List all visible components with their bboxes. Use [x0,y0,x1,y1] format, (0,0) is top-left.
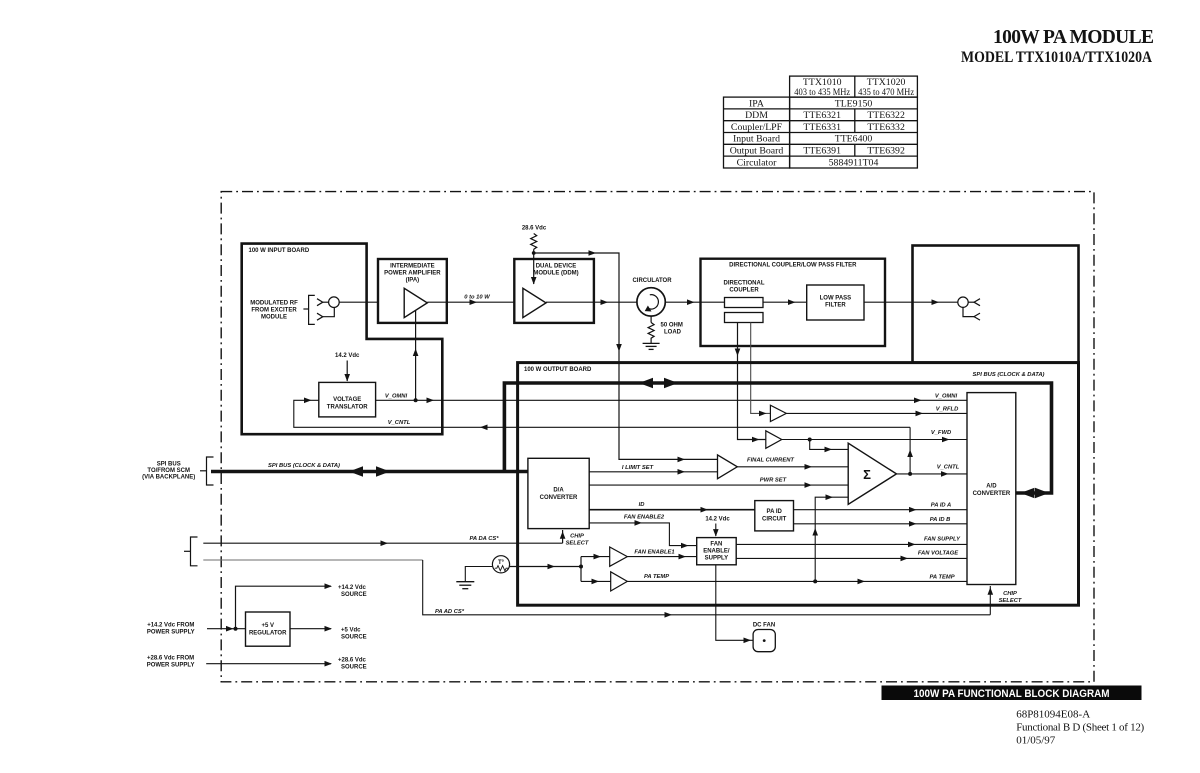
svg-text:Coupler/LPF: Coupler/LPF [731,122,783,133]
svg-text:TTE6332: TTE6332 [867,122,905,133]
svg-text:CONVERTER: CONVERTER [540,495,578,501]
svg-text:TO/FROM SCM: TO/FROM SCM [147,468,190,474]
svg-text:SOURCE: SOURCE [341,635,367,641]
svg-text:Σ: Σ [863,467,871,482]
svg-text:TTE6321: TTE6321 [803,110,841,121]
svg-text:DDM: DDM [745,110,768,121]
svg-text:FAN: FAN [710,542,722,548]
svg-text:DC FAN: DC FAN [753,623,775,629]
svg-text:CHIP: CHIP [1003,591,1017,597]
svg-text:100W PA MODULE: 100W PA MODULE [993,27,1154,48]
svg-text:100W PA FUNCTIONAL BLOCK DIAGR: 100W PA FUNCTIONAL BLOCK DIAGRAM [914,688,1110,700]
svg-text:+28.6 Vdc: +28.6 Vdc [338,658,367,664]
svg-text:V_RFLD: V_RFLD [936,406,959,412]
svg-text:+14.2 Vdc: +14.2 Vdc [338,585,367,591]
svg-text:PA TEMP: PA TEMP [929,574,954,580]
svg-text:50 OHM: 50 OHM [661,323,683,329]
svg-text:14.2 Vdc: 14.2 Vdc [335,353,360,359]
svg-text:403 to 435 MHz: 403 to 435 MHz [794,87,851,98]
svg-text:Input Board: Input Board [733,134,780,145]
svg-text:+28.6 Vdc FROM: +28.6 Vdc FROM [147,655,194,661]
svg-text:68P81094E08-A: 68P81094E08-A [1016,709,1090,721]
svg-text:FAN ENABLE2: FAN ENABLE2 [624,515,665,521]
svg-text:VOLTAGE: VOLTAGE [333,397,361,403]
svg-text:SOURCE: SOURCE [341,665,367,671]
svg-text:TTE6400: TTE6400 [835,134,873,145]
svg-text:FROM EXCITER: FROM EXCITER [251,307,297,313]
svg-text:PWR SET: PWR SET [760,478,787,484]
svg-text:(VIA BACKPLANE): (VIA BACKPLANE) [142,475,195,481]
svg-text:FAN ENABLE1: FAN ENABLE1 [634,550,674,556]
svg-text:IPA: IPA [749,98,764,109]
svg-text:V_FWD: V_FWD [931,430,952,436]
svg-text:COUPLER: COUPLER [729,288,759,294]
svg-text:ENABLE/: ENABLE/ [703,549,730,555]
svg-text:MODULATED RF: MODULATED RF [250,300,298,306]
svg-text:V_OMNI: V_OMNI [935,393,958,399]
svg-text:CIRCULATOR: CIRCULATOR [632,278,672,284]
svg-text:DIRECTIONAL: DIRECTIONAL [724,281,765,287]
svg-text:I LIMIT SET: I LIMIT SET [622,465,654,471]
svg-text:Circulator: Circulator [737,157,777,168]
svg-text:PA TEMP: PA TEMP [644,574,669,580]
svg-text:SELECT: SELECT [999,598,1022,604]
svg-text:MODULE: MODULE [261,314,287,320]
svg-text:435 to 470 MHz: 435 to 470 MHz [858,87,915,98]
svg-text:+14.2 Vdc FROM: +14.2 Vdc FROM [147,622,194,628]
svg-text:D/A: D/A [553,487,564,493]
svg-text:PA ID: PA ID [767,509,783,515]
svg-text:V_CNTL: V_CNTL [388,420,411,426]
svg-text:MODEL TTX1010A/TTX1020A: MODEL TTX1010A/TTX1020A [961,49,1152,66]
svg-text:TTE6322: TTE6322 [867,110,905,121]
svg-text:REGULATOR: REGULATOR [249,631,287,637]
svg-text:0 to 10 W: 0 to 10 W [464,294,490,300]
svg-text:A/D: A/D [986,484,997,490]
svg-text:5884911T04: 5884911T04 [829,157,879,168]
svg-text:FAN VOLTAGE: FAN VOLTAGE [918,550,959,556]
svg-text:MODULE (DDM): MODULE (DDM) [533,271,578,277]
svg-text:TTE6392: TTE6392 [867,146,905,157]
svg-text:FAN SUPPLY: FAN SUPPLY [924,536,961,542]
svg-text:PA DA CS*: PA DA CS* [469,536,499,542]
svg-text:LOAD: LOAD [664,330,682,336]
svg-text:PA ID A: PA ID A [931,503,951,509]
svg-text:SPI BUS: SPI BUS [157,462,181,468]
svg-text:100 W INPUT BOARD: 100 W INPUT BOARD [249,248,310,254]
svg-text:DIRECTIONAL COUPLER/LOW PASS F: DIRECTIONAL COUPLER/LOW PASS FILTER [729,263,857,269]
svg-text:CONVERTER: CONVERTER [973,491,1011,497]
svg-text:SPI BUS (CLOCK & DATA): SPI BUS (CLOCK & DATA) [268,463,340,469]
svg-text:100 W OUTPUT BOARD: 100 W OUTPUT BOARD [524,367,592,373]
svg-text:FILTER: FILTER [825,303,846,309]
svg-text:TLE9150: TLE9150 [835,98,873,109]
svg-text:LOW PASS: LOW PASS [820,296,852,302]
svg-text:01/05/97: 01/05/97 [1016,735,1056,747]
svg-text:V_CNTL: V_CNTL [937,465,960,471]
svg-text:FINAL CURRENT: FINAL CURRENT [747,458,794,464]
svg-text:+5 Vdc: +5 Vdc [341,628,361,634]
svg-text:SUPPLY: SUPPLY [705,556,728,562]
svg-text:Functional B D (Sheet 1 of 12): Functional B D (Sheet 1 of 12) [1016,722,1144,734]
svg-text:Output Board: Output Board [730,146,784,157]
svg-text:POWER SUPPLY: POWER SUPPLY [147,662,195,668]
svg-text:DUAL DEVICE: DUAL DEVICE [536,264,577,270]
svg-text:TRANSLATOR: TRANSLATOR [327,405,368,411]
svg-text:+5 V: +5 V [261,623,274,629]
svg-text:SOURCE: SOURCE [341,592,367,598]
svg-text:V_OMNI: V_OMNI [385,393,408,399]
svg-text:T°: T° [498,560,505,566]
svg-text:TTE6391: TTE6391 [803,146,841,157]
svg-text:INTERMEDIATE: INTERMEDIATE [390,264,435,270]
svg-text:14.2 Vdc: 14.2 Vdc [705,517,730,523]
svg-text:28.6 Vdc: 28.6 Vdc [522,226,547,232]
svg-text:POWER SUPPLY: POWER SUPPLY [147,629,195,635]
svg-text:CIRCUIT: CIRCUIT [762,517,787,523]
svg-text:TTE6331: TTE6331 [803,122,841,133]
svg-text:ID: ID [639,502,646,508]
svg-text:PA ID B: PA ID B [930,517,951,523]
svg-text:(IPA): (IPA) [406,278,420,284]
svg-text:SPI BUS (CLOCK & DATA): SPI BUS (CLOCK & DATA) [973,372,1045,378]
svg-text:CHIP: CHIP [570,534,584,540]
svg-text:SELECT: SELECT [566,541,589,547]
svg-text:POWER AMPLIFIER: POWER AMPLIFIER [384,271,441,277]
